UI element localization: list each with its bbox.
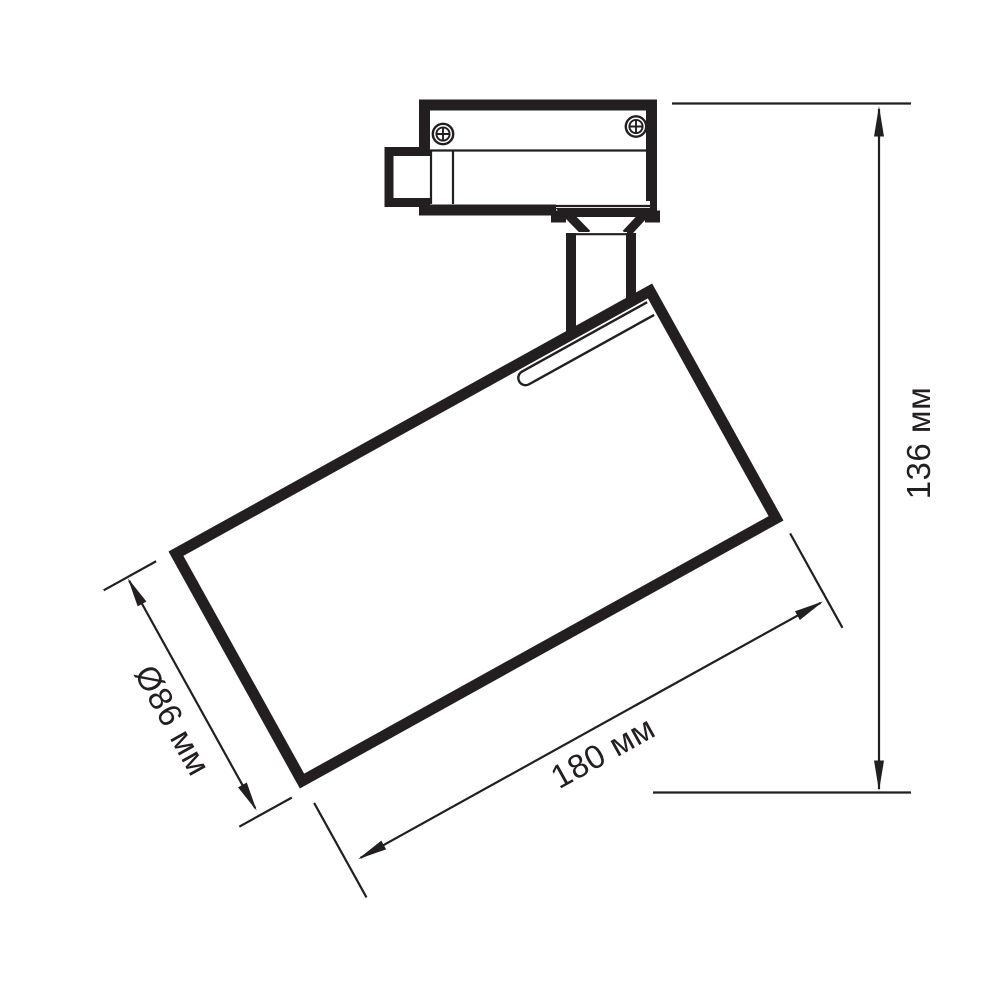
lamp-head-body [176, 291, 776, 781]
height-label: 136 мм [900, 387, 937, 500]
extension-tick-top [104, 561, 156, 590]
arrow-down-icon [874, 761, 884, 792]
adapter-housing [425, 105, 652, 210]
track-adapter [389, 105, 660, 223]
arrow-icon [238, 783, 261, 814]
extension-tick-left [314, 803, 366, 897]
screw-right-icon [626, 116, 646, 136]
arrow-icon [355, 841, 386, 864]
track-light-diagram: 136 мм [0, 0, 1000, 1000]
arrow-up-icon [874, 106, 884, 137]
stem-neck-wall-left [566, 233, 576, 337]
lamp-head: Ø86 мм 180 мм [85, 286, 848, 952]
stem-flare [566, 213, 646, 235]
stem-neck-wall-right [626, 233, 636, 303]
product-dimension-drawing: 136 мм [0, 0, 1000, 1000]
adapter-connector-tab [389, 152, 430, 203]
arrow-icon [123, 576, 146, 607]
arrow-icon [795, 597, 826, 620]
length-label: 180 мм [544, 709, 660, 796]
screw-left-icon [433, 124, 453, 144]
diameter-label: Ø86 мм [127, 659, 218, 782]
extension-tick-bottom [239, 798, 291, 827]
